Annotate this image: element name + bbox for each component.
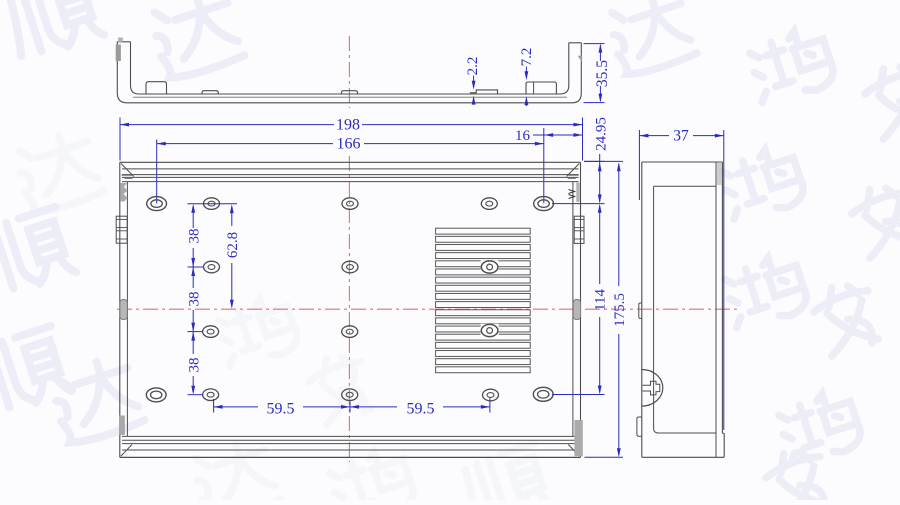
- svg-text:38: 38: [187, 229, 203, 244]
- svg-text:7.2: 7.2: [519, 48, 535, 67]
- svg-text:198: 198: [336, 117, 360, 134]
- svg-text:2.2: 2.2: [465, 57, 481, 76]
- svg-text:175.5: 175.5: [612, 293, 628, 327]
- svg-text:59.5: 59.5: [267, 400, 295, 417]
- svg-text:38: 38: [187, 292, 203, 307]
- svg-text:16: 16: [515, 128, 531, 144]
- svg-text:24.95: 24.95: [594, 117, 610, 151]
- svg-text:37: 37: [673, 128, 689, 145]
- svg-text:59.5: 59.5: [407, 400, 435, 417]
- svg-text:114: 114: [593, 289, 609, 311]
- svg-text:166: 166: [337, 136, 361, 153]
- svg-text:38: 38: [187, 358, 203, 373]
- svg-text:62.8: 62.8: [225, 232, 241, 258]
- svg-text:35.5: 35.5: [594, 60, 611, 87]
